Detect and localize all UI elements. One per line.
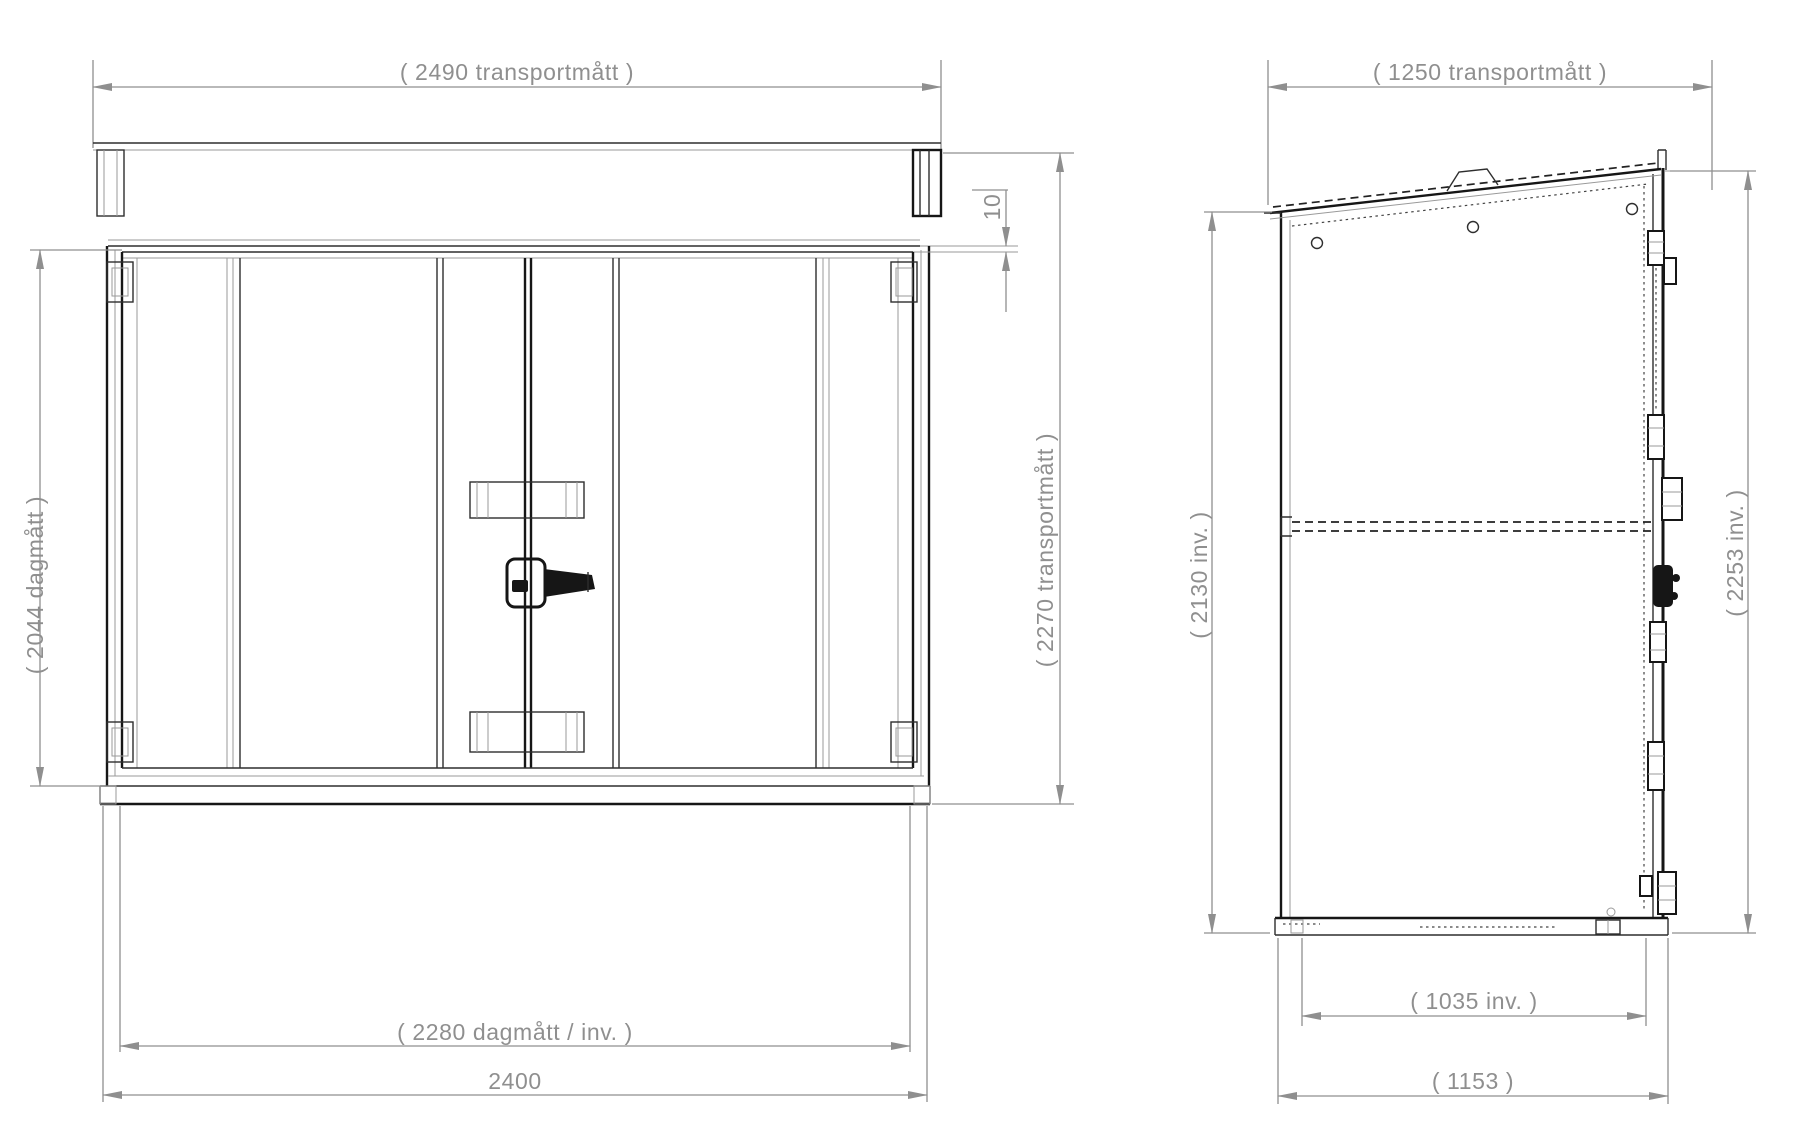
hidden-shelf-line: [1281, 517, 1652, 536]
double-doors: [108, 252, 1018, 776]
front-opening-width-dimension: ( 2280 dagmått / inv. ): [120, 806, 910, 1052]
base-rail-side: [1275, 908, 1668, 935]
roof-gap-label: 10: [979, 194, 1005, 221]
side-door-hardware: [1640, 231, 1682, 914]
roof-gap-dimension: 10: [972, 190, 1008, 312]
side-view: ( 1250 transportmått ): [1186, 59, 1756, 1104]
side-inner-height-dimension: ( 2130 inv. ): [1186, 212, 1272, 933]
side-base-depth-dimension: ( 1153 ): [1278, 938, 1668, 1104]
base-rail-front: [100, 786, 930, 804]
front-base-width-label: 2400: [488, 1068, 542, 1094]
front-transport-height-label: ( 2270 transportmått ): [1032, 433, 1058, 667]
front-view: ( 2490 transportmått ) 10: [22, 59, 1074, 1102]
slanted-roof: [1264, 163, 1661, 226]
front-base-width-dimension: 2400: [103, 806, 927, 1102]
side-transport-depth-label: ( 1250 transportmått ): [1373, 59, 1607, 85]
side-transport-depth-dimension: ( 1250 transportmått ): [1268, 59, 1712, 205]
side-inner-height-label: ( 2130 inv. ): [1186, 511, 1212, 639]
front-opening-width-label: ( 2280 dagmått / inv. ): [397, 1019, 633, 1045]
side-door-height-label: ( 2253 inv. ): [1722, 489, 1748, 617]
front-transport-width-label: ( 2490 transportmått ): [400, 59, 634, 85]
side-inner-depth-dimension: ( 1035 inv. ): [1302, 938, 1646, 1026]
door-hinges: [107, 262, 917, 762]
front-transport-width-dimension: ( 2490 transportmått ): [93, 59, 941, 152]
front-opening-height-label: ( 2044 dagmått ): [22, 496, 48, 674]
front-transport-height-dimension: ( 2270 transportmått ): [932, 153, 1074, 804]
container-technical-drawing: ( 2490 transportmått ) 10: [0, 0, 1800, 1134]
side-base-depth-label: ( 1153 ): [1432, 1068, 1514, 1094]
container-shell: [107, 246, 929, 786]
side-inner-depth-label: ( 1035 inv. ): [1410, 988, 1538, 1014]
wall-holes: [1312, 204, 1638, 249]
side-door-height-dimension: ( 2253 inv. ): [1670, 171, 1756, 933]
latch-plate-top: [470, 482, 584, 518]
roof-band: [93, 143, 1018, 246]
door-handle: [507, 559, 595, 607]
drawing-canvas: ( 2490 transportmått ) 10: [0, 0, 1800, 1134]
latch-plate-bottom: [470, 712, 584, 752]
